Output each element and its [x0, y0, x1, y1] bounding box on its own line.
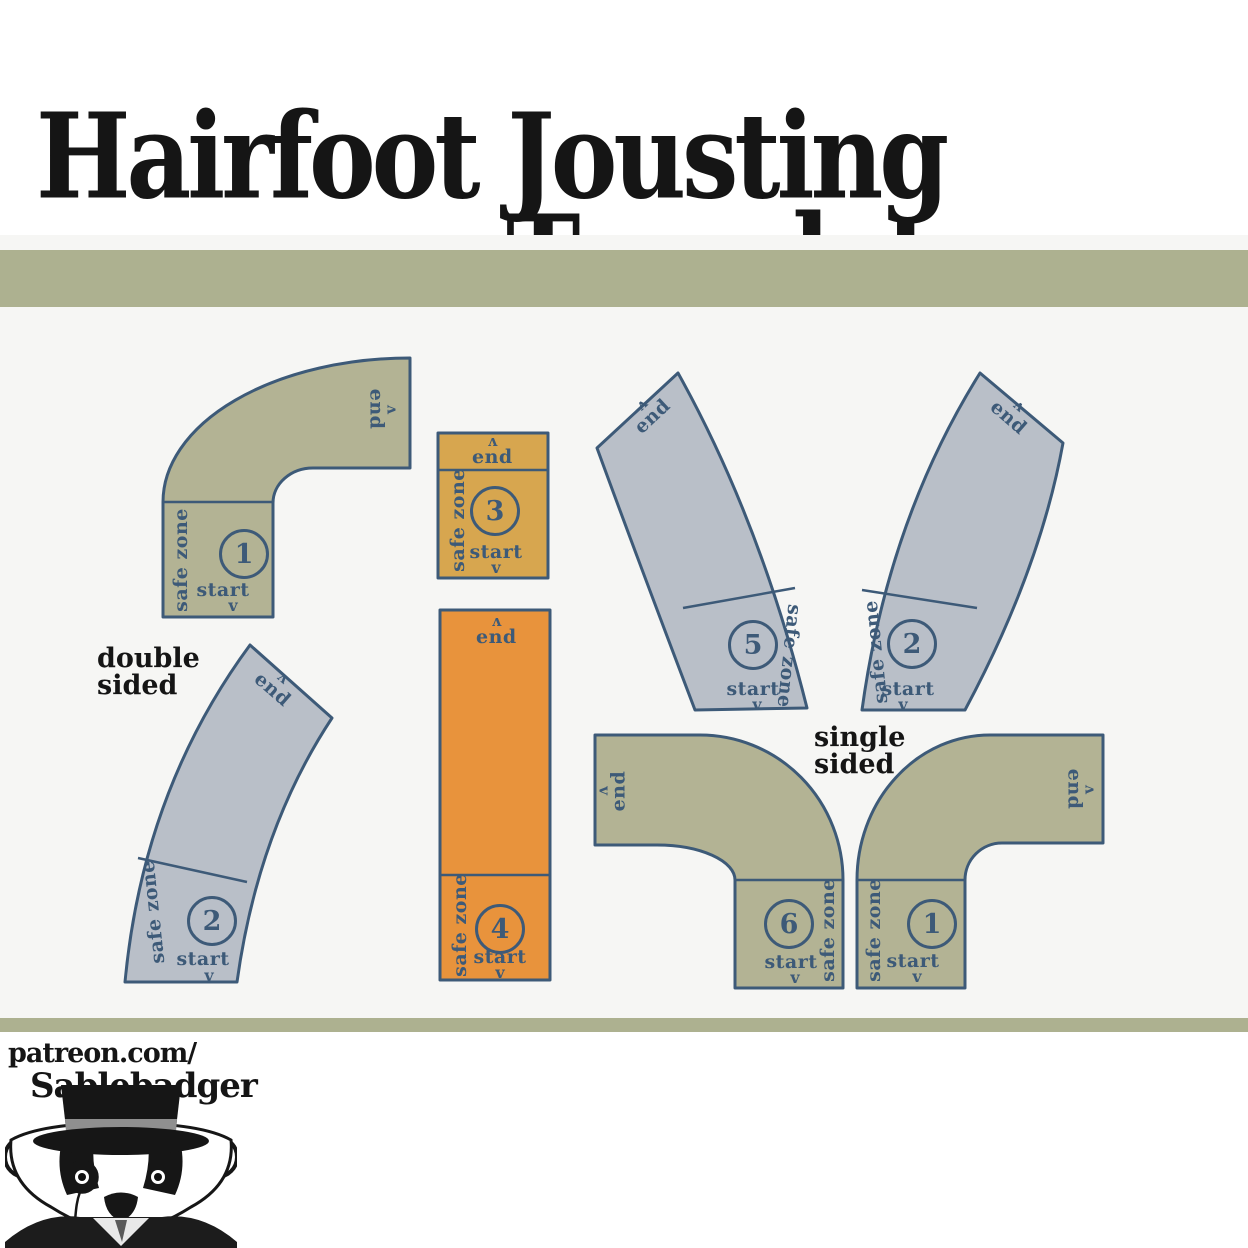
end-arrow-icon: v: [598, 786, 610, 795]
end-group: v end: [476, 617, 517, 645]
start-arrow-icon: v: [495, 965, 504, 981]
end-arrow-icon: v: [1082, 784, 1094, 793]
number-badge: 2: [887, 619, 937, 669]
start-arrow-icon: v: [752, 697, 761, 713]
start-arrow-icon: v: [491, 560, 500, 576]
end-arrow-icon: v: [488, 437, 497, 449]
end-group: v end: [472, 437, 513, 465]
double-sided-label: double sided: [97, 645, 200, 699]
start-arrow-icon: v: [912, 969, 921, 985]
end-arrow-icon: v: [635, 399, 650, 414]
start-label: start: [176, 948, 229, 970]
patreon-url-line1: patreon.com/: [8, 1038, 196, 1069]
end-group: v end: [598, 771, 626, 812]
start-arrow-icon: v: [228, 598, 237, 614]
number-badge: 3: [470, 486, 520, 536]
poster-page: { "title": { "line1": "Hairfoot Jousting…: [0, 0, 1248, 1248]
end-arrow-icon: v: [1010, 399, 1025, 414]
start-arrow-icon: v: [898, 697, 907, 713]
start-label: start: [196, 579, 249, 601]
end-arrow-icon: v: [384, 404, 396, 413]
end-arrow-icon: v: [274, 671, 289, 686]
badger-mascot-icon: [5, 1085, 237, 1248]
number-badge: 1: [907, 899, 957, 949]
number-badge: 6: [764, 899, 814, 949]
safe-zone-label: safe zone: [447, 468, 469, 572]
single-sided-line2: sided: [814, 751, 905, 778]
double-sided-line2: sided: [97, 672, 200, 699]
number-badge: 5: [728, 620, 778, 670]
safe-zone-label: safe zone: [863, 878, 885, 982]
end-group: v end: [1066, 769, 1094, 810]
single-sided-line1: single: [814, 724, 905, 751]
single-sided-label: single sided: [814, 724, 905, 778]
end-group: v end: [368, 389, 396, 430]
number-badge: 1: [219, 529, 269, 579]
number-badge: 2: [187, 896, 237, 946]
start-arrow-icon: v: [790, 970, 799, 986]
double-sided-line1: double: [97, 645, 200, 672]
start-arrow-icon: v: [204, 968, 213, 984]
safe-zone-label: safe zone: [449, 873, 471, 977]
start-label: start: [881, 678, 934, 700]
template-5-curve-shape: [597, 373, 807, 710]
safe-zone-label: safe zone: [817, 878, 839, 982]
end-arrow-icon: v: [492, 617, 501, 629]
safe-zone-label: safe zone: [170, 508, 192, 612]
